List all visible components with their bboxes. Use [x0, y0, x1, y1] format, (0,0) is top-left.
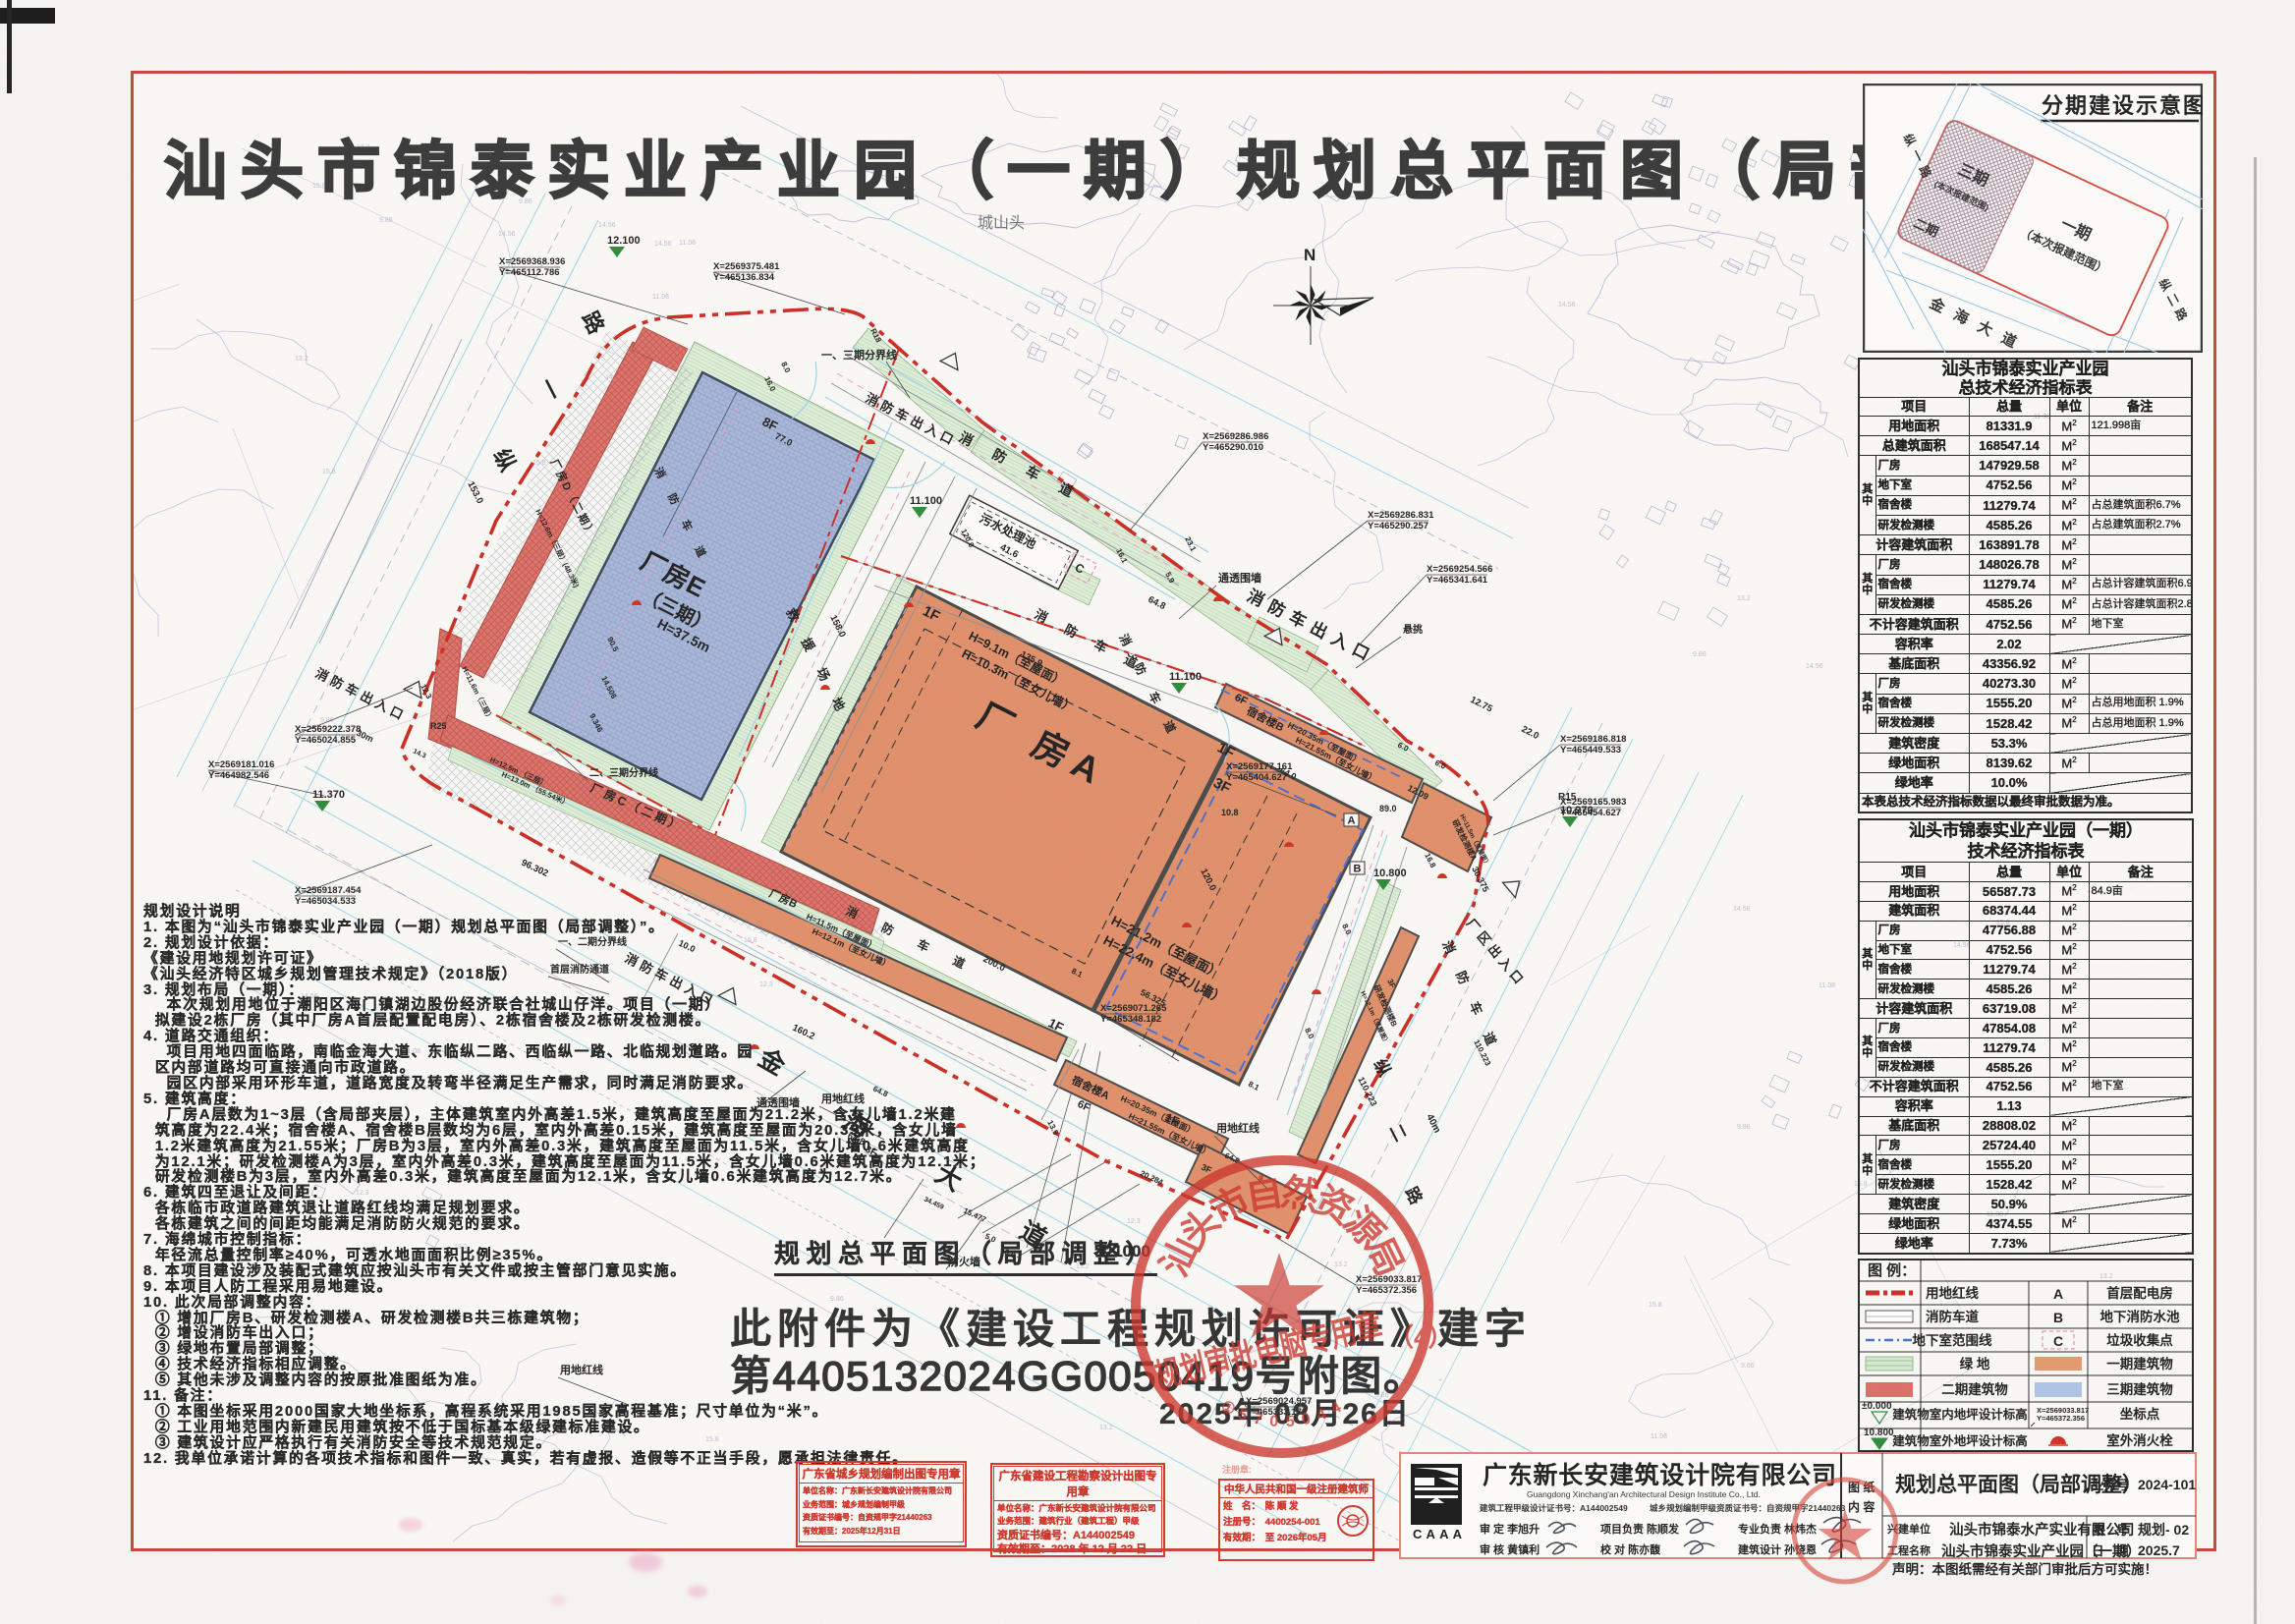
svg-text:车: 车: [1467, 999, 1485, 1017]
svg-text:2024-101: 2024-101: [2138, 1477, 2196, 1492]
svg-text:X=2569187.454: X=2569187.454: [295, 885, 362, 896]
svg-text:口: 口: [387, 703, 405, 722]
svg-text:消: 消: [864, 390, 881, 409]
svg-text:Y=465372.356: Y=465372.356: [2037, 1414, 2085, 1423]
svg-text:建筑物室外地坪设计标高: 建筑物室外地坪设计标高: [1892, 1433, 2028, 1448]
svg-text:0: 0: [1300, 1411, 1312, 1428]
svg-text:通透围墙: 通透围墙: [1218, 571, 1261, 585]
svg-text:消: 消: [1033, 606, 1050, 625]
svg-text:Guangdong Xinchang'an Architec: Guangdong Xinchang'an Architectural Desi…: [1527, 1489, 1761, 1499]
svg-text:B: B: [2053, 1310, 2063, 1325]
svg-text:纵: 纵: [489, 445, 521, 476]
svg-text:Y=465348.182: Y=465348.182: [1100, 1014, 1161, 1025]
svg-text:车: 车: [1092, 637, 1109, 655]
svg-text:Y=465112.786: Y=465112.786: [499, 267, 560, 278]
svg-text:地下消防水池: 地下消防水池: [2100, 1309, 2180, 1324]
svg-text:首层配电房: 首层配电房: [2106, 1285, 2173, 1301]
svg-text:Y=465136.834: Y=465136.834: [713, 272, 775, 283]
svg-text:入: 入: [372, 696, 390, 714]
svg-text:10.970: 10.970: [1560, 805, 1594, 816]
svg-text:坐标点: 坐标点: [2120, 1406, 2160, 1422]
svg-text:用地红线: 用地红线: [1926, 1285, 1979, 1301]
svg-text:分期建设示意图: 分期建设示意图: [2042, 93, 2203, 118]
svg-text:纵: 纵: [1370, 1056, 1395, 1080]
svg-text:一、三期分界线: 一、三期分界线: [821, 348, 897, 362]
svg-text:出: 出: [358, 688, 375, 706]
svg-text:项目负责 陈顺发: 项目负责 陈顺发: [1600, 1522, 1680, 1536]
svg-text:0: 0: [1269, 1413, 1279, 1430]
svg-text:40m: 40m: [1424, 1112, 1442, 1135]
svg-text:出: 出: [1307, 617, 1330, 643]
svg-text:11.100: 11.100: [1169, 671, 1202, 683]
svg-text:消: 消: [313, 665, 331, 684]
svg-text:4: 4: [1328, 1399, 1344, 1418]
svg-text:±0.000: ±0.000: [1862, 1401, 1892, 1412]
svg-text:X=2569222.378: X=2569222.378: [295, 724, 361, 735]
svg-text:①: ①: [1218, 1398, 1239, 1420]
svg-text:消: 消: [1439, 938, 1458, 956]
svg-text:12.75: 12.75: [1469, 695, 1495, 715]
svg-text:158.0: 158.0: [827, 613, 848, 639]
svg-text:8.0: 8.0: [779, 361, 792, 374]
svg-text:二、三期分界线: 二、三期分界线: [589, 766, 658, 779]
svg-text:防: 防: [1453, 969, 1472, 986]
svg-text:11.370: 11.370: [312, 789, 345, 801]
svg-text:Y=465290.010: Y=465290.010: [1203, 442, 1263, 453]
svg-text:X=2569375.481: X=2569375.481: [713, 261, 780, 272]
svg-text:Y=465449.533: Y=465449.533: [1560, 745, 1621, 756]
svg-text:口: 口: [1506, 967, 1526, 986]
svg-text:业务号: 业务号: [2092, 1478, 2129, 1492]
svg-text:10.8: 10.8: [1221, 808, 1239, 817]
svg-text:N: N: [1304, 246, 1315, 264]
svg-text:X=2569177.161: X=2569177.161: [1226, 761, 1293, 772]
svg-text:5: 5: [1285, 1413, 1295, 1430]
svg-text:（4）: （4）: [1388, 1322, 1453, 1352]
svg-text:Y=465341.641: Y=465341.641: [1427, 575, 1488, 586]
svg-text:防: 防: [878, 398, 896, 417]
svg-text:车: 车: [893, 406, 911, 424]
svg-text:场: 场: [813, 665, 832, 683]
svg-text:22.0: 22.0: [1520, 724, 1540, 742]
svg-text:7: 7: [1252, 1411, 1263, 1428]
svg-text:消防车道: 消防车道: [1926, 1309, 1979, 1324]
svg-text:防: 防: [1265, 596, 1289, 622]
svg-text:广东新长安建筑设计院有限公司: 广东新长安建筑设计院有限公司: [1483, 1461, 1836, 1489]
svg-text:C: C: [2053, 1333, 2063, 1349]
svg-text:X=2569186.818: X=2569186.818: [1560, 734, 1626, 745]
svg-text:Y=465290.257: Y=465290.257: [1368, 521, 1428, 532]
svg-text:B: B: [1354, 864, 1362, 875]
svg-text:8.1: 8.1: [1247, 1080, 1260, 1092]
svg-text:地下室范围线: 地下室范围线: [1913, 1332, 1992, 1348]
svg-text:Y=464982.546: Y=464982.546: [208, 770, 269, 781]
svg-text:悬挑: 悬挑: [1402, 623, 1423, 636]
svg-text:X=2569071.265: X=2569071.265: [1100, 1003, 1167, 1014]
svg-text:Y=465404.627: Y=465404.627: [1226, 772, 1287, 783]
svg-text:建筑物室内地坪设计标高: 建筑物室内地坪设计标高: [1892, 1407, 2028, 1422]
svg-text:绿 地: 绿 地: [1960, 1356, 1990, 1372]
svg-text:日 期: 日 期: [2092, 1543, 2129, 1558]
svg-text:入: 入: [1328, 629, 1352, 653]
svg-text:10.800: 10.800: [1373, 868, 1407, 879]
svg-text:R25: R25: [430, 721, 447, 731]
svg-text:23.1: 23.1: [1183, 535, 1198, 553]
svg-text:14.3: 14.3: [412, 748, 426, 759]
svg-text:垃圾收集点: 垃圾收集点: [2106, 1332, 2173, 1348]
svg-text:X=2569254.566: X=2569254.566: [1427, 564, 1492, 575]
svg-text:一期建筑物: 一期建筑物: [2106, 1356, 2173, 1372]
svg-text:X=2569368.936: X=2569368.936: [499, 256, 565, 267]
svg-text:图 例：: 图 例：: [1868, 1261, 1916, 1279]
svg-text:X=2569286.986: X=2569286.986: [1203, 431, 1268, 442]
svg-text:审 核 黄镇利: 审 核 黄镇利: [1480, 1542, 1539, 1556]
svg-text:三期建筑物: 三期建筑物: [2106, 1381, 2173, 1397]
svg-text:10.800: 10.800: [1864, 1428, 1894, 1438]
svg-text:用地红线: 用地红线: [1216, 1121, 1259, 1135]
svg-text:室外消火栓: 室外消火栓: [2106, 1432, 2173, 1448]
svg-text:消: 消: [1116, 632, 1135, 649]
svg-text:96.302: 96.302: [520, 858, 550, 879]
svg-text:车: 车: [1286, 607, 1310, 633]
svg-text:城山头: 城山头: [978, 214, 1025, 232]
svg-text:二期建筑物: 二期建筑物: [1941, 1381, 2008, 1397]
svg-text:图 号: 图 号: [2092, 1523, 2129, 1538]
svg-text:64.8: 64.8: [1147, 594, 1167, 612]
svg-text:Y=465024.855: Y=465024.855: [295, 735, 357, 746]
svg-text:防: 防: [328, 673, 346, 692]
svg-text:审 定 李旭升: 审 定 李旭升: [1480, 1522, 1539, 1536]
svg-text:车: 车: [343, 681, 361, 700]
svg-text:5: 5: [1236, 1406, 1250, 1425]
svg-text:30.375: 30.375: [1470, 865, 1490, 893]
svg-text:防: 防: [1062, 622, 1080, 641]
svg-text:X=2569181.016: X=2569181.016: [208, 759, 274, 770]
svg-text:一: 一: [534, 374, 566, 405]
svg-text:12.100: 12.100: [607, 235, 641, 247]
svg-text:89.0: 89.0: [1379, 804, 1397, 813]
svg-text:路: 路: [578, 308, 610, 339]
svg-text:建筑工程甲级设计证书号：A144002549: 建筑工程甲级设计证书号：A144002549: [1479, 1503, 1628, 1513]
svg-text:A: A: [2053, 1286, 2063, 1302]
svg-text:校 对 陈亦馥: 校 对 陈亦馥: [1600, 1542, 1661, 1556]
svg-text:X=2569286.831: X=2569286.831: [1368, 510, 1434, 521]
svg-text:2025.7: 2025.7: [2138, 1542, 2180, 1558]
svg-text:6.0: 6.0: [1433, 758, 1447, 771]
svg-text:11.100: 11.100: [910, 495, 942, 507]
svg-text:A: A: [1348, 815, 1356, 827]
svg-text:规划- 02: 规划- 02: [2138, 1522, 2189, 1538]
svg-text:4: 4: [1315, 1406, 1328, 1425]
svg-text:153.0: 153.0: [465, 479, 485, 505]
svg-text:声明：本图纸需经有关部门审批后方可实施！: 声明：本图纸需经有关部门审批后方可实施！: [1891, 1561, 2157, 1577]
svg-text:消: 消: [1244, 586, 1267, 611]
